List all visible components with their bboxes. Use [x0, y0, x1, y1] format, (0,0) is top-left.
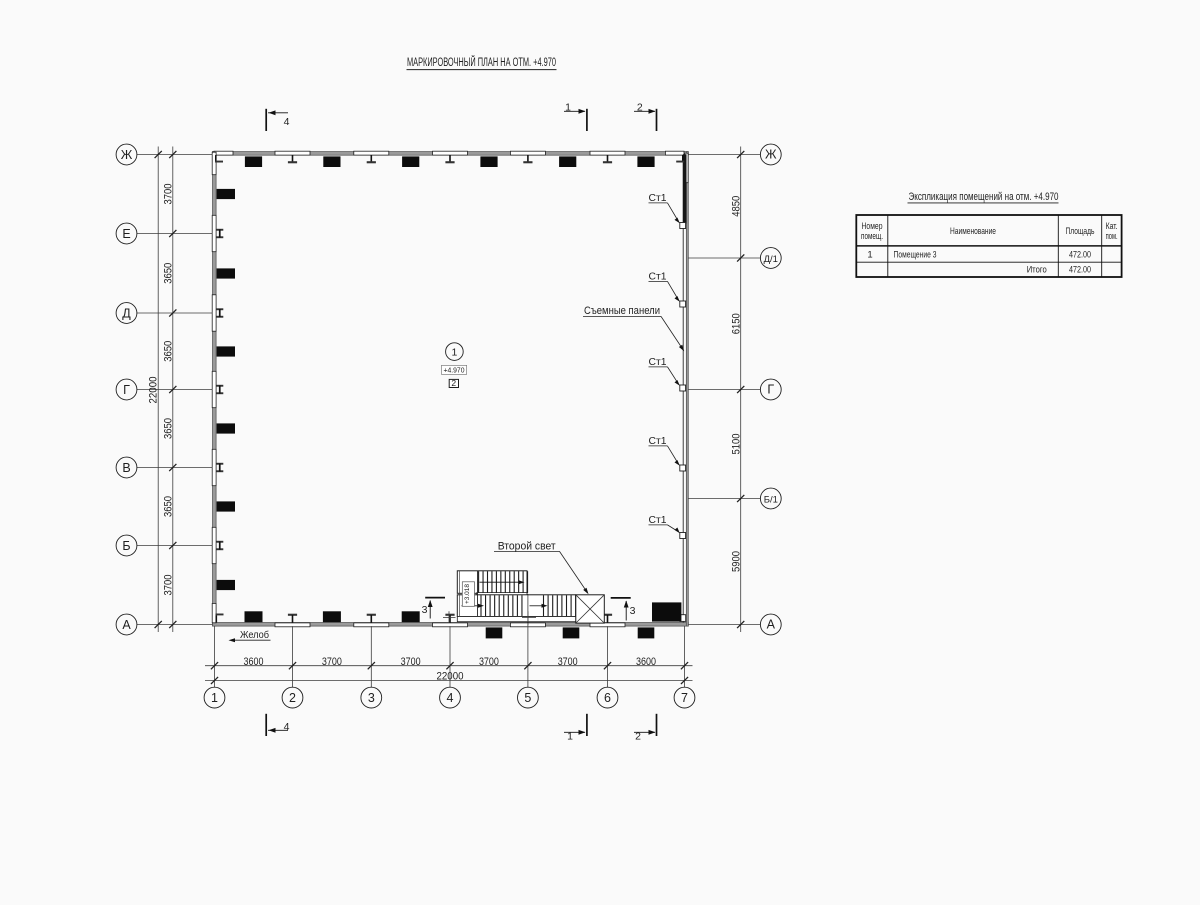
svg-text:Ж: Ж [121, 148, 133, 162]
svg-text:Номер: Номер [862, 221, 883, 231]
svg-text:4: 4 [284, 116, 290, 128]
svg-text:В: В [122, 461, 130, 475]
svg-text:3650: 3650 [163, 418, 175, 439]
svg-text:Ж: Ж [765, 147, 777, 161]
svg-text:Б: Б [122, 539, 130, 553]
svg-text:+4.970: +4.970 [444, 365, 465, 374]
svg-text:Г: Г [123, 383, 130, 397]
svg-text:Второй свет: Второй свет [498, 541, 556, 553]
svg-text:Б/1: Б/1 [764, 494, 778, 505]
svg-text:1: 1 [565, 102, 571, 114]
svg-text:Ст1: Ст1 [649, 192, 667, 204]
svg-text:Д: Д [122, 306, 131, 320]
svg-text:3600: 3600 [636, 656, 656, 668]
svg-text:Д/1: Д/1 [764, 254, 778, 265]
svg-text:6150: 6150 [731, 313, 743, 334]
svg-text:3600: 3600 [244, 656, 264, 668]
svg-text:3700: 3700 [163, 575, 175, 596]
svg-text:помещ.: помещ. [861, 231, 883, 241]
svg-text:3: 3 [422, 604, 428, 616]
svg-text:Г: Г [767, 382, 774, 396]
svg-text:МАРКИРОВОЧНЫЙ ПЛАН НА ОТМ. +4.: МАРКИРОВОЧНЫЙ ПЛАН НА ОТМ. +4.970 [407, 56, 556, 69]
svg-text:22000: 22000 [437, 671, 464, 683]
svg-text:472.00: 472.00 [1069, 249, 1091, 260]
svg-text:3700: 3700 [558, 656, 578, 668]
svg-text:А: А [122, 618, 131, 632]
svg-text:2: 2 [637, 102, 643, 114]
svg-text:Ст1: Ст1 [649, 356, 667, 368]
svg-text:1: 1 [451, 346, 457, 358]
svg-text:3650: 3650 [163, 341, 175, 362]
svg-text:3700: 3700 [322, 656, 342, 668]
svg-text:5: 5 [524, 691, 531, 705]
svg-text:1: 1 [867, 249, 872, 260]
svg-text:3700: 3700 [401, 656, 421, 668]
svg-text:2: 2 [289, 691, 296, 705]
svg-text:4850: 4850 [731, 196, 743, 217]
svg-text:Желоб: Желоб [240, 629, 269, 641]
svg-text:472.00: 472.00 [1069, 265, 1091, 276]
svg-text:3700: 3700 [163, 184, 175, 205]
svg-text:3700: 3700 [479, 656, 499, 668]
svg-text:Помещение 3: Помещение 3 [894, 249, 937, 260]
svg-text:Площадь: Площадь [1066, 226, 1095, 237]
svg-text:5900: 5900 [731, 551, 743, 572]
svg-text:7: 7 [681, 691, 688, 705]
svg-text:Кат.: Кат. [1106, 221, 1118, 231]
svg-text:3650: 3650 [163, 496, 175, 517]
svg-text:22000: 22000 [148, 377, 160, 404]
svg-text:6: 6 [604, 691, 611, 705]
svg-text:Итого: Итого [1027, 265, 1047, 276]
svg-text:+3.018: +3.018 [464, 583, 471, 604]
svg-text:Экспликация помещений на отм.: Экспликация помещений на отм. +4.970 [909, 191, 1059, 203]
svg-text:4: 4 [447, 691, 454, 705]
svg-text:1: 1 [567, 731, 573, 743]
svg-text:2: 2 [451, 378, 456, 388]
svg-text:2: 2 [635, 731, 641, 743]
svg-text:4: 4 [284, 721, 290, 733]
svg-text:Ст1: Ст1 [649, 271, 667, 283]
svg-text:Ст1: Ст1 [649, 514, 667, 526]
svg-text:3650: 3650 [163, 263, 175, 284]
svg-text:пом.: пом. [1106, 231, 1118, 241]
svg-text:1: 1 [211, 691, 218, 705]
svg-text:5100: 5100 [731, 434, 743, 455]
svg-text:Ст1: Ст1 [649, 435, 667, 447]
svg-text:Е: Е [122, 227, 130, 241]
svg-text:А: А [767, 617, 776, 631]
svg-text:Наименование: Наименование [950, 226, 996, 237]
svg-text:3: 3 [368, 691, 375, 705]
svg-text:3: 3 [630, 605, 636, 617]
svg-text:Съемные панели: Съемные панели [584, 305, 660, 317]
